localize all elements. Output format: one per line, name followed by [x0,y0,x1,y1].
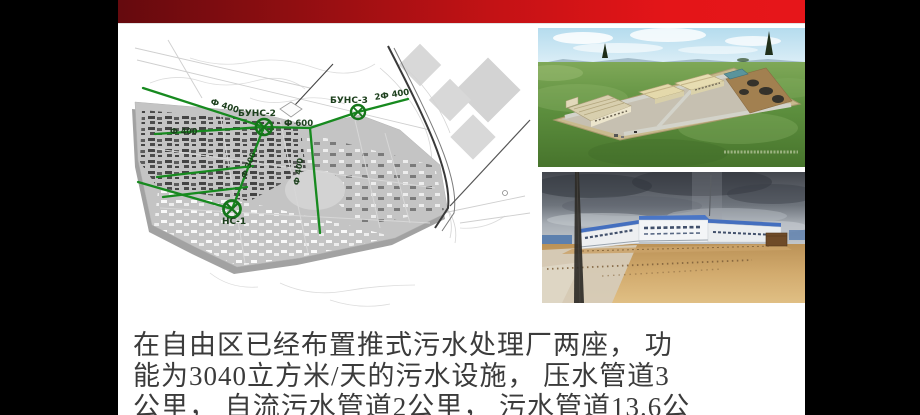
photo-blue-fence-left [542,235,572,244]
station-label-ns1: НС-1 [222,217,246,227]
photo-blue-fence-right [789,230,805,240]
body-text-line-3: 公里， 自流污水管道2公里， 污水管道13.6公 [133,392,793,415]
photo-treatment-plant-render [538,28,805,167]
diamond-watermark [399,44,521,160]
body-text-line-2: 能为3040立方米/天的污水设施， 压水管道3 [133,361,793,392]
pipeline-map: БУНС-2 БУНС-3 НС-1 Ф 400 Ф 400 Ф 600 2Ф … [130,38,540,338]
photo-dumpster [766,233,787,246]
slide-body-text: 在自由区已经布置推式污水处理厂两座， 功 能为3040立方米/天的污水设施， 压… [133,330,793,415]
pipe-label-f600: Ф 600 [284,119,313,129]
slide: БУНС-2 БУНС-3 НС-1 Ф 400 Ф 400 Ф 600 2Ф … [118,0,805,415]
treatment-plant-render-figure [538,28,805,167]
site-marker [280,64,333,117]
pump-station-photo-figure [542,172,805,303]
photo-pump-station-building [542,172,805,303]
pipeline-map-figure: БУНС-2 БУНС-3 НС-1 Ф 400 Ф 400 Ф 600 2Ф … [130,38,540,338]
station-label-buns2: БУНС-2 [238,109,276,119]
station-label-buns3: БУНС-3 [330,96,368,106]
pipe-label-f400-west: Ф 400 [170,127,198,136]
presentation-viewport: БУНС-2 БУНС-3 НС-1 Ф 400 Ф 400 Ф 600 2Ф … [0,0,920,415]
body-text-line-1: 在自由区已经布置推式污水处理厂两座， 功 [133,330,793,361]
title-banner [118,0,805,24]
